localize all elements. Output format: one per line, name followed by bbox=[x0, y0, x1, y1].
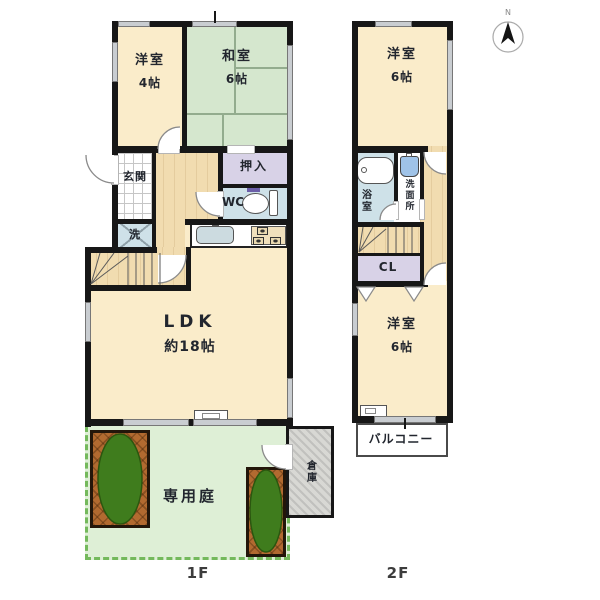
entrance-label: 玄関 bbox=[114, 168, 156, 186]
room-size: 6帖 bbox=[226, 73, 248, 86]
burner-icon bbox=[257, 227, 268, 235]
kitchen-sink-icon bbox=[196, 226, 234, 244]
room-japanese-label: 和室 6帖 bbox=[202, 44, 272, 92]
toilet-tank-icon bbox=[269, 190, 278, 216]
floor-box-inner bbox=[365, 408, 376, 414]
room-western-n-label: 洋室 6帖 bbox=[368, 42, 436, 90]
window bbox=[118, 21, 150, 27]
toilet-buttons-icon bbox=[247, 188, 260, 192]
toilet-icon bbox=[242, 193, 269, 214]
room-name: 洋室 bbox=[135, 54, 165, 68]
window bbox=[375, 21, 412, 27]
bathtub-drain-icon bbox=[361, 167, 367, 173]
window bbox=[287, 45, 293, 140]
window-sliding bbox=[123, 419, 189, 426]
storage-shed: 倉庫 bbox=[286, 426, 334, 518]
washbasin-tap-icon bbox=[406, 153, 412, 157]
window bbox=[352, 303, 358, 336]
north-compass-icon: N bbox=[493, 8, 523, 52]
planter-left bbox=[90, 430, 150, 528]
bathroom-label: 浴室 bbox=[354, 180, 376, 222]
room-western-4-label: 洋室 4帖 bbox=[117, 46, 183, 98]
washroom-label: 洗面所 bbox=[397, 168, 421, 222]
wall bbox=[218, 184, 290, 188]
wall bbox=[85, 285, 191, 291]
storage-door bbox=[285, 444, 293, 470]
planter-right bbox=[246, 467, 286, 557]
tatami-line bbox=[222, 115, 224, 148]
ldk-label: LDK 約18帖 bbox=[128, 306, 252, 362]
entrance-door-arc bbox=[86, 155, 114, 183]
wc-label: WC bbox=[220, 192, 246, 214]
door bbox=[158, 145, 180, 154]
floor-plan: 倉庫 bbox=[0, 0, 600, 600]
room-name: 和室 bbox=[222, 50, 252, 64]
wall bbox=[85, 419, 293, 426]
burner-icon bbox=[270, 237, 281, 245]
window-sliding bbox=[193, 419, 257, 426]
balcony-label: バルコニー bbox=[356, 426, 446, 454]
laundry-label: 洗 bbox=[117, 221, 153, 249]
window bbox=[85, 302, 91, 342]
wall bbox=[186, 247, 191, 291]
compass-north-label: N bbox=[505, 8, 511, 17]
room-western-s-label: 洋室 6帖 bbox=[368, 312, 436, 360]
storage-label: 倉庫 bbox=[289, 429, 331, 515]
wall bbox=[352, 146, 428, 153]
burner-icon bbox=[253, 237, 264, 245]
floor-1f-label: 1F bbox=[158, 564, 238, 584]
garden-label: 専用庭 bbox=[130, 484, 250, 508]
window bbox=[287, 378, 293, 418]
tatami-line bbox=[187, 113, 287, 115]
floor-2f-label: 2F bbox=[358, 564, 438, 584]
room-size: 4帖 bbox=[139, 77, 161, 90]
closet-oshiire-label: 押入 bbox=[220, 150, 288, 184]
window-tick bbox=[214, 11, 216, 23]
closet-cl-label: CL bbox=[352, 254, 424, 282]
wall bbox=[185, 219, 293, 225]
window bbox=[447, 40, 453, 110]
wall bbox=[352, 222, 424, 227]
